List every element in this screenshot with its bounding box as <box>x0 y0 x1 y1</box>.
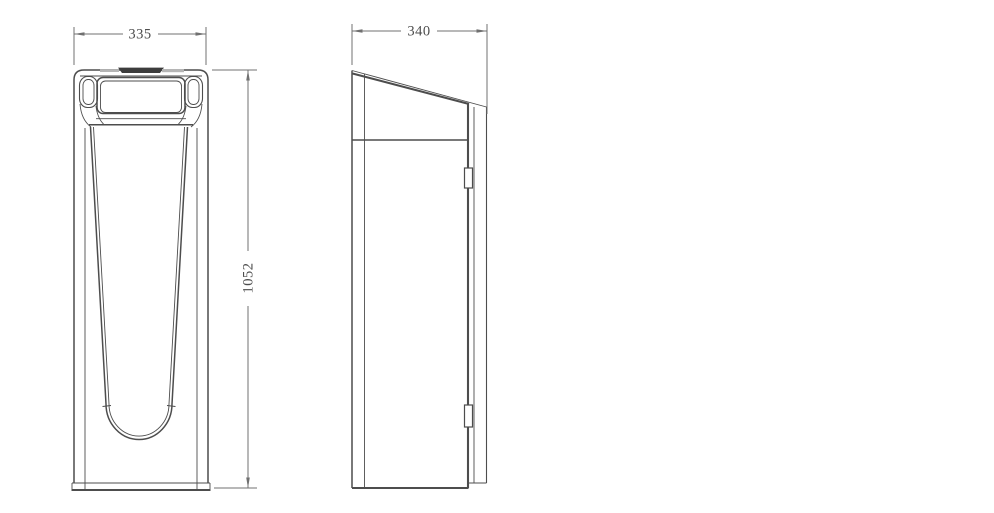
dimension-front-width: 335 <box>74 27 206 66</box>
dimension-label-front-width: 335 <box>128 27 151 43</box>
arrowhead-left <box>352 29 363 33</box>
front-view <box>72 68 211 490</box>
side-view <box>352 71 487 489</box>
front-top-gray-bar-right <box>162 69 184 72</box>
front-top-gray-bar-left <box>100 69 119 72</box>
side-lid-slant-outer <box>352 71 487 108</box>
arrowhead-right <box>196 32 207 36</box>
dimension-side-depth: 340 <box>352 24 487 115</box>
corner-pad-right-outer <box>185 77 203 108</box>
front-opening-inner <box>101 81 182 113</box>
front-top-dark-bar <box>118 68 164 73</box>
dimension-label-side-depth: 340 <box>407 24 430 40</box>
corner-pad-left-inner <box>83 80 94 105</box>
front-opening-outer <box>97 78 185 114</box>
arrowhead-right <box>477 29 488 33</box>
dimension-overall-height: 1052 <box>212 70 257 488</box>
basin-wall-outer <box>91 127 188 440</box>
hinge-bottom <box>465 405 473 427</box>
drawing-canvas: 335 1052 340 <box>0 0 994 513</box>
dimension-label-height: 1052 <box>241 263 257 294</box>
basin-kink-tick-left <box>103 406 112 407</box>
arrowhead-up <box>246 70 250 81</box>
side-lid-slant-inner <box>353 74 470 105</box>
hinge-top <box>465 168 473 188</box>
corner-pad-left-outer <box>80 77 98 108</box>
arrowhead-down <box>246 478 250 489</box>
arrowhead-left <box>74 32 85 36</box>
basin-wall-inner <box>94 127 185 436</box>
technical-drawing: 335 1052 340 <box>0 0 994 513</box>
basin-kink-tick-right <box>167 406 176 407</box>
corner-pad-right-inner <box>188 80 199 105</box>
